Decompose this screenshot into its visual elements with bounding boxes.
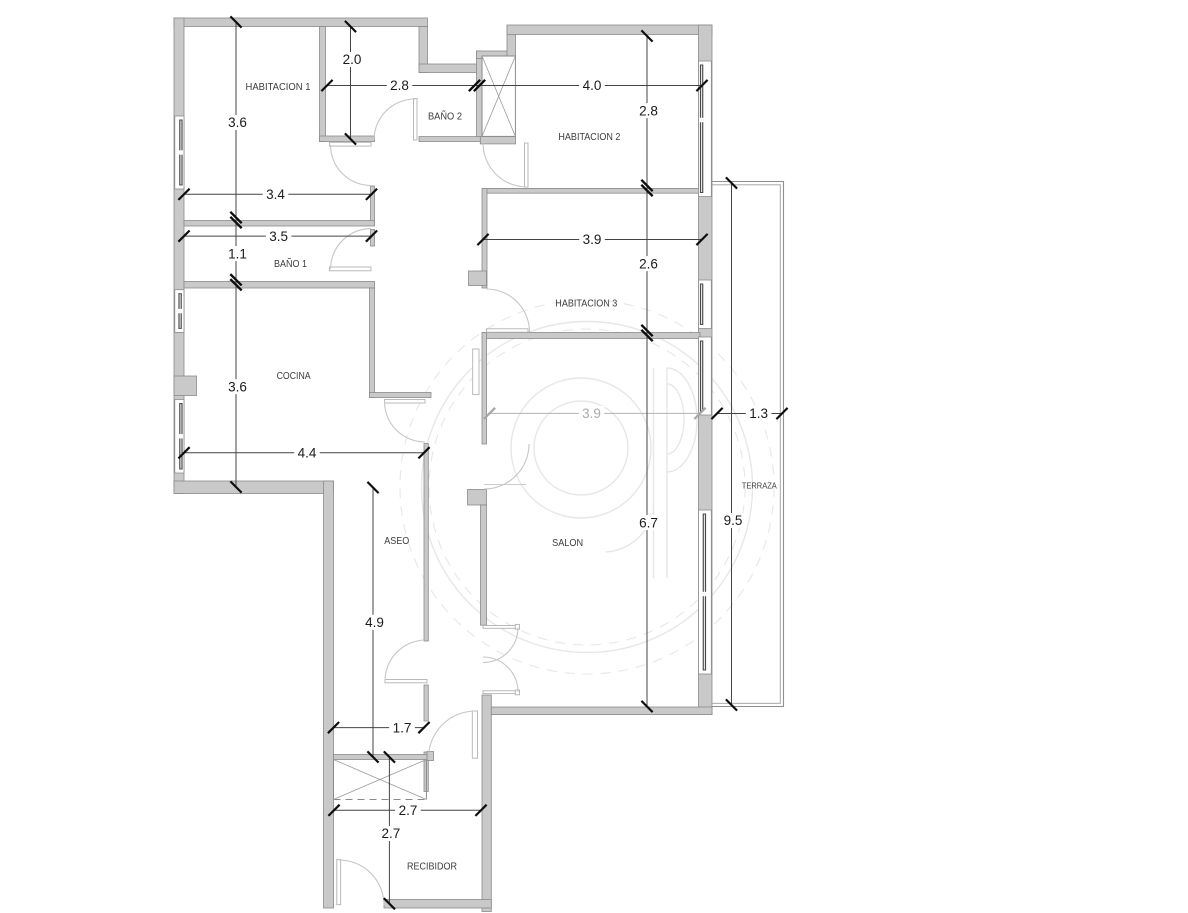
svg-text:3.9: 3.9 [583, 232, 602, 247]
svg-text:1.3: 1.3 [749, 406, 768, 421]
svg-text:HABITACION 3: HABITACION 3 [555, 298, 617, 310]
svg-text:3.6: 3.6 [228, 379, 247, 394]
svg-text:3.6: 3.6 [228, 115, 247, 130]
svg-text:HABITACION 1: HABITACION 1 [246, 81, 311, 93]
svg-text:1.1: 1.1 [228, 246, 247, 261]
svg-text:COCINA: COCINA [277, 370, 311, 382]
svg-text:2.7: 2.7 [399, 803, 418, 818]
svg-text:3.4: 3.4 [266, 187, 285, 202]
svg-text:2.7: 2.7 [382, 826, 401, 841]
svg-text:4.4: 4.4 [298, 446, 317, 461]
svg-text:TERRAZA: TERRAZA [742, 481, 777, 491]
svg-text:4.0: 4.0 [583, 78, 602, 93]
svg-text:1.7: 1.7 [393, 720, 412, 735]
svg-text:9.5: 9.5 [724, 513, 743, 528]
svg-text:ASEO: ASEO [384, 535, 409, 547]
svg-text:BAÑO 2: BAÑO 2 [428, 110, 462, 123]
svg-text:3.5: 3.5 [269, 229, 288, 244]
svg-text:RECIBIDOR: RECIBIDOR [407, 861, 457, 873]
svg-text:2.8: 2.8 [639, 103, 658, 118]
svg-text:2.6: 2.6 [639, 256, 658, 271]
svg-text:BAÑO 1: BAÑO 1 [274, 257, 307, 270]
svg-text:HABITACION 2: HABITACION 2 [558, 131, 620, 143]
svg-text:3.9: 3.9 [582, 406, 601, 421]
svg-text:4.9: 4.9 [365, 615, 384, 630]
svg-text:SALON: SALON [552, 537, 583, 549]
svg-text:2.8: 2.8 [390, 78, 409, 93]
svg-text:2.0: 2.0 [343, 52, 362, 67]
svg-text:6.7: 6.7 [639, 515, 658, 530]
